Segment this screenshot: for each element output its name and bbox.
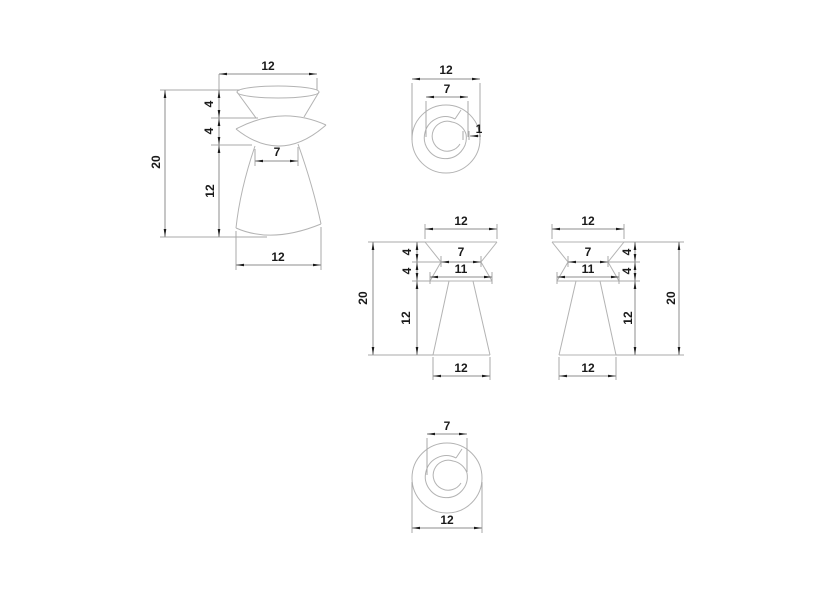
dim-text-lower-height: 12 — [203, 184, 217, 198]
dim-text-top-diameter: 12 — [261, 59, 275, 73]
outer-circle — [412, 443, 482, 513]
dim-text-upper-height: 4 — [400, 248, 414, 255]
spiral-curve — [425, 456, 467, 498]
dim-text-bulge-width: 11 — [455, 262, 468, 276]
bulge-bottom-arc — [236, 125, 326, 146]
base-arc — [236, 224, 321, 235]
dim-text-bulge-height: 4 — [202, 127, 216, 134]
dim-text-inner-diameter: 7 — [444, 82, 451, 96]
dim-text-upper-height: 4 — [620, 248, 634, 255]
dim-text-bulge-height: 4 — [620, 267, 634, 274]
rim-ellipse — [237, 86, 319, 98]
bottom-view: 7 12 — [412, 419, 482, 533]
extension-lines-vertical — [219, 74, 321, 270]
dim-text-bulge-height: 4 — [400, 267, 414, 274]
dim-text-lower-height: 12 — [621, 311, 635, 325]
dim-text-top-width: 12 — [581, 214, 595, 228]
dim-text-spiral-step: 1 — [476, 122, 483, 136]
dim-text-total-height: 20 — [149, 155, 163, 169]
dim-text-total-height: 20 — [664, 291, 678, 305]
dim-text-total-height: 20 — [356, 291, 370, 305]
dim-text-inner-diameter: 7 — [444, 419, 451, 433]
spiral-curve — [424, 117, 466, 159]
dim-text-waist-width: 7 — [458, 245, 465, 259]
dim-text-waist-width: 7 — [585, 245, 592, 259]
top-view: 12 7 1 — [412, 63, 483, 173]
extension-lines-horizontal — [368, 242, 441, 355]
cad-drawing-canvas: 12 4 4 20 12 7 12 12 7 1 12 7 11 4 — [0, 0, 840, 594]
dim-text-top-width: 12 — [454, 214, 468, 228]
side-view: 12 7 11 4 4 12 20 12 — [552, 214, 684, 380]
cone-left-edge — [236, 146, 255, 228]
dim-text-base-diameter: 12 — [271, 250, 285, 264]
cone-right-edge — [298, 144, 321, 224]
dim-text-upper-height: 4 — [202, 100, 216, 107]
dim-text-waist-diameter: 7 — [274, 145, 281, 159]
dim-text-lower-height: 12 — [399, 311, 413, 325]
dim-text-bulge-width: 11 — [582, 262, 595, 276]
perspective-view: 12 4 4 20 12 7 12 — [149, 59, 326, 270]
dim-text-base-width: 12 — [454, 361, 468, 375]
dim-text-base-width: 12 — [581, 361, 595, 375]
extension-lines-horizontal — [160, 90, 267, 237]
drawing-sheet: 12 4 4 20 12 7 12 12 7 1 12 7 11 4 — [0, 0, 840, 594]
dim-text-outer-diameter: 12 — [440, 513, 454, 527]
spiral-seam — [456, 449, 462, 458]
spiral-seam — [455, 110, 461, 119]
dim-text-outer-diameter: 12 — [439, 63, 453, 77]
front-view: 12 7 11 4 4 12 20 12 — [356, 214, 497, 380]
outer-circle — [412, 105, 480, 173]
